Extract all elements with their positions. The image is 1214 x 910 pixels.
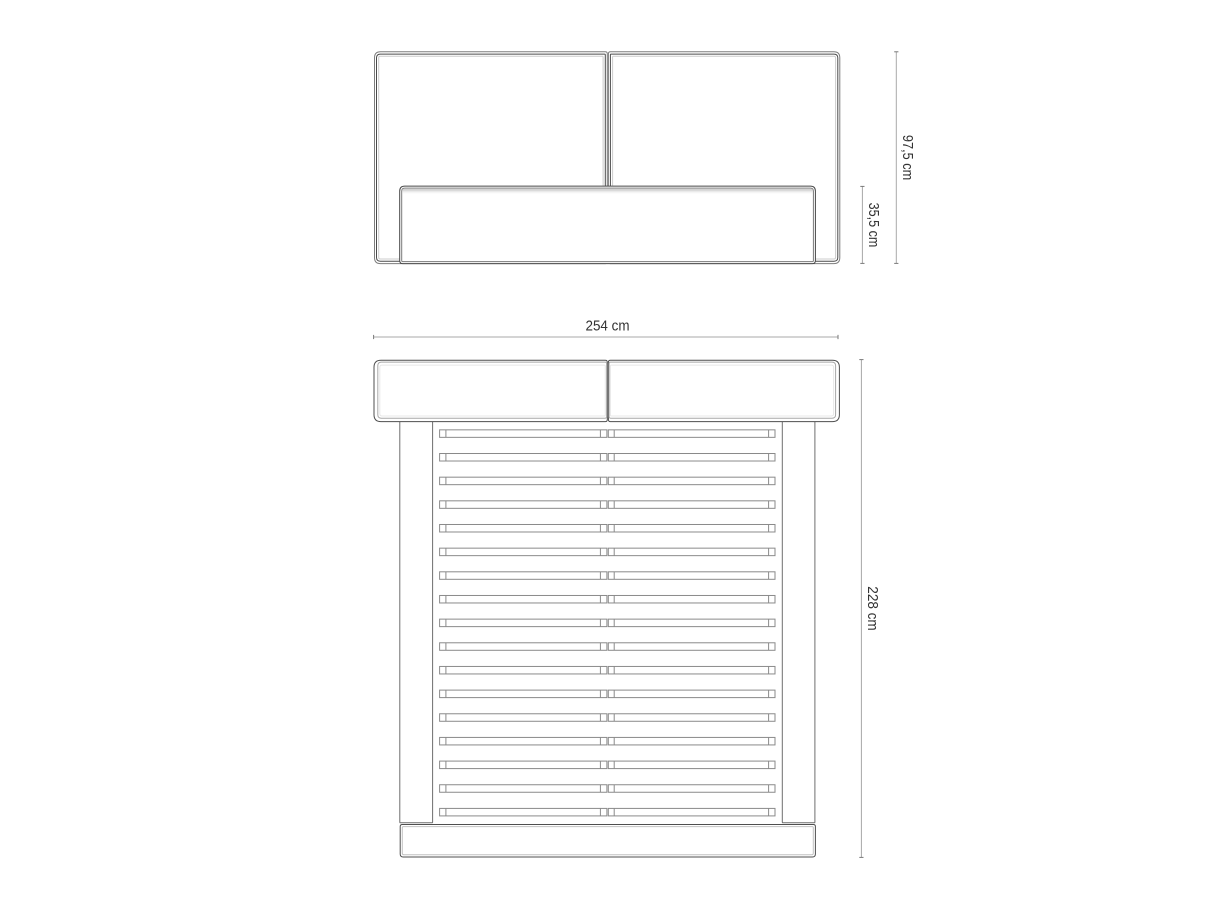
svg-text:97,5 cm: 97,5 cm	[899, 135, 915, 180]
svg-text:35,5 cm: 35,5 cm	[865, 203, 881, 248]
svg-text:228 cm: 228 cm	[864, 586, 880, 630]
svg-text:254 cm: 254 cm	[586, 318, 630, 334]
